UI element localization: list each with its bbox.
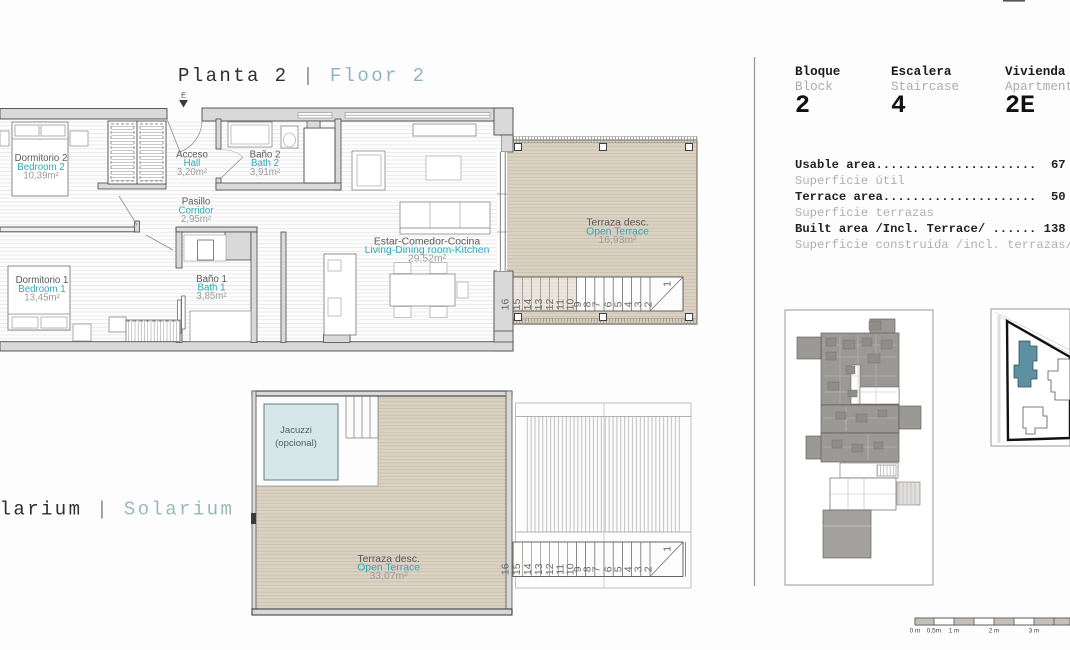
svg-text:3,20m²: 3,20m² [177, 167, 208, 178]
svg-text:0,5m: 0,5m [927, 628, 941, 635]
svg-text:Planta 2 | Floor 2: Planta 2 | Floor 2 [178, 65, 426, 87]
svg-text:10,39m²: 10,39m² [23, 171, 59, 182]
svg-text:16: 16 [500, 563, 512, 575]
svg-text:Solarium | Solarium: Solarium | Solarium [0, 499, 234, 521]
svg-text:E: E [181, 91, 186, 100]
svg-text:(opcional): (opcional) [275, 438, 317, 449]
svg-text:2 m: 2 m [989, 628, 1000, 635]
svg-text:7: 7 [591, 301, 603, 307]
svg-text:Escalera: Escalera [891, 65, 952, 79]
svg-text:2E: 2E [1005, 91, 1035, 120]
svg-text:33,07m²: 33,07m² [370, 571, 409, 582]
svg-text:2: 2 [643, 566, 655, 572]
svg-text:3,85m²: 3,85m² [196, 291, 227, 302]
svg-text:Superficie construida /incl. t: Superficie construida /incl. terrazas/ [795, 238, 1070, 252]
svg-text:2,95m²: 2,95m² [181, 214, 212, 225]
svg-text:3,91m²: 3,91m² [250, 167, 281, 178]
svg-text:Bloque: Bloque [795, 65, 840, 79]
svg-text:16: 16 [500, 299, 512, 311]
svg-text:Superficie terrazas: Superficie terrazas [795, 206, 934, 220]
svg-text:0 m: 0 m [910, 628, 921, 635]
svg-text:Superficie útil: Superficie útil [795, 174, 905, 188]
svg-text:7: 7 [591, 566, 603, 572]
svg-text:Jacuzzi: Jacuzzi [280, 425, 312, 436]
svg-text:1: 1 [662, 281, 674, 287]
svg-text:3 m: 3 m [1029, 628, 1040, 635]
svg-text:13,45m²: 13,45m² [24, 293, 60, 304]
svg-text:16,93m²: 16,93m² [598, 235, 637, 246]
svg-text:Built area /Incl. Terrace/ ...: Built area /Incl. Terrace/ ...... 138 [795, 222, 1066, 236]
svg-text:Vivienda: Vivienda [1005, 65, 1066, 79]
svg-text:4: 4 [891, 91, 906, 120]
svg-text:29,52m²: 29,52m² [408, 254, 447, 265]
svg-text:Usable area...................: Usable area...................... 67 [795, 158, 1066, 172]
svg-text:2: 2 [795, 91, 810, 120]
svg-text:Terrace area..................: Terrace area..................... 50 [795, 190, 1066, 204]
svg-text:1 m: 1 m [949, 628, 960, 635]
svg-text:2: 2 [643, 301, 655, 307]
svg-text:1: 1 [662, 546, 674, 552]
